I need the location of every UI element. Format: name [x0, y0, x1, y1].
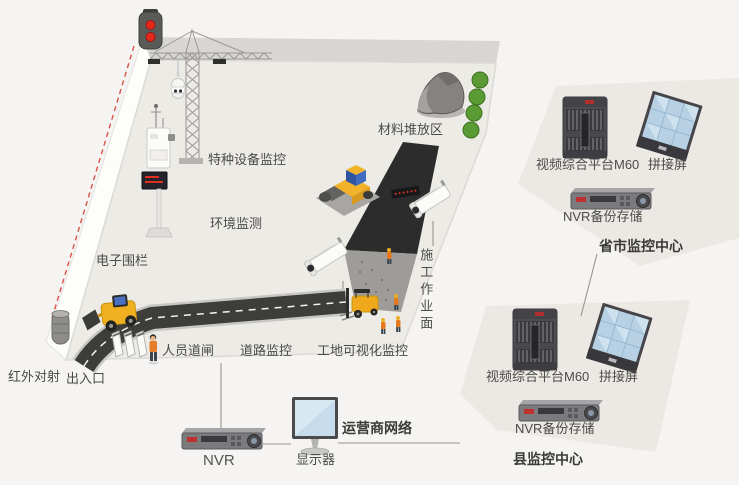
- label-site-visual-monitoring: 工地可视化监控: [317, 344, 408, 358]
- label-infrared: 红外对射: [8, 370, 60, 384]
- province-nvr-backup-icon: [571, 188, 655, 209]
- label-province-video-wall: 拼接屏: [648, 158, 687, 172]
- desktop-monitor-icon: [292, 397, 338, 455]
- label-province-center-title: 省市监控中心: [599, 239, 683, 254]
- label-personnel-gate: 人员道闸: [162, 344, 214, 358]
- label-environment: 环境监测: [210, 217, 262, 231]
- label-nvr: NVR: [203, 453, 235, 470]
- county-nvr-backup-icon: [519, 400, 603, 421]
- label-county-video-wall: 拼接屏: [599, 370, 638, 384]
- label-county-center-title: 县监控中心: [513, 452, 583, 467]
- traffic-light-icon: [139, 9, 162, 49]
- label-special-equipment: 特种设备监控: [208, 153, 286, 167]
- label-road-monitoring: 道路监控: [240, 344, 292, 358]
- label-monitor: 显示器: [296, 453, 335, 467]
- local-nvr-icon: [182, 428, 266, 449]
- label-electronic-fence: 电子围栏: [96, 254, 148, 268]
- construction-site-monitoring-diagram: 特种设备监控 环境监测 材料堆放区 电子围栏 红外对射 出入口 人员道闸 道路监…: [0, 0, 739, 485]
- label-province-platform: 视频综合平台M60: [536, 158, 639, 172]
- county-m60-rack-icon: [513, 309, 557, 370]
- label-entrance: 出入口: [66, 372, 105, 386]
- label-county-backup: NVR备份存储: [515, 422, 594, 436]
- label-province-backup: NVR备份存储: [563, 210, 642, 224]
- label-material-area: 材料堆放区: [378, 123, 443, 137]
- infrared-beam-post-icon: [52, 311, 69, 345]
- label-work-surface: 施工作业面: [418, 248, 432, 333]
- province-m60-rack-icon: [563, 97, 607, 158]
- label-county-platform: 视频综合平台M60: [486, 370, 589, 384]
- label-operator-network: 运营商网络: [342, 421, 412, 436]
- turnstile-gates-icon: [112, 331, 147, 357]
